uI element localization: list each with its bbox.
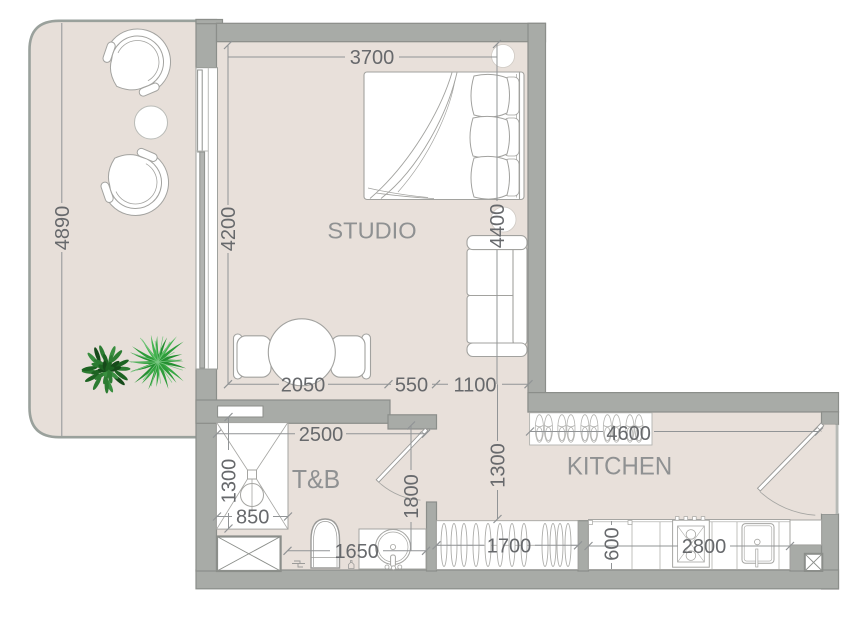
svg-text:600: 600 [602, 527, 624, 560]
svg-text:850: 850 [236, 507, 269, 529]
svg-text:KITCHEN: KITCHEN [567, 453, 672, 481]
svg-text:4200: 4200 [218, 207, 240, 252]
svg-text:2500: 2500 [299, 424, 344, 446]
svg-text:T&B: T&B [292, 465, 340, 494]
svg-text:4400: 4400 [487, 204, 509, 249]
svg-text:1700: 1700 [487, 536, 532, 558]
svg-text:4600: 4600 [606, 423, 651, 445]
svg-text:3700: 3700 [350, 47, 395, 69]
svg-text:1650: 1650 [334, 541, 379, 563]
svg-text:2800: 2800 [682, 536, 727, 558]
svg-text:2050: 2050 [281, 374, 326, 396]
svg-text:1300: 1300 [219, 459, 241, 504]
svg-text:550: 550 [395, 374, 428, 396]
svg-text:STUDIO: STUDIO [327, 218, 416, 244]
svg-text:1300: 1300 [488, 443, 510, 488]
svg-text:1100: 1100 [453, 374, 496, 396]
svg-text:1800: 1800 [401, 474, 423, 519]
svg-text:4890: 4890 [52, 206, 74, 251]
